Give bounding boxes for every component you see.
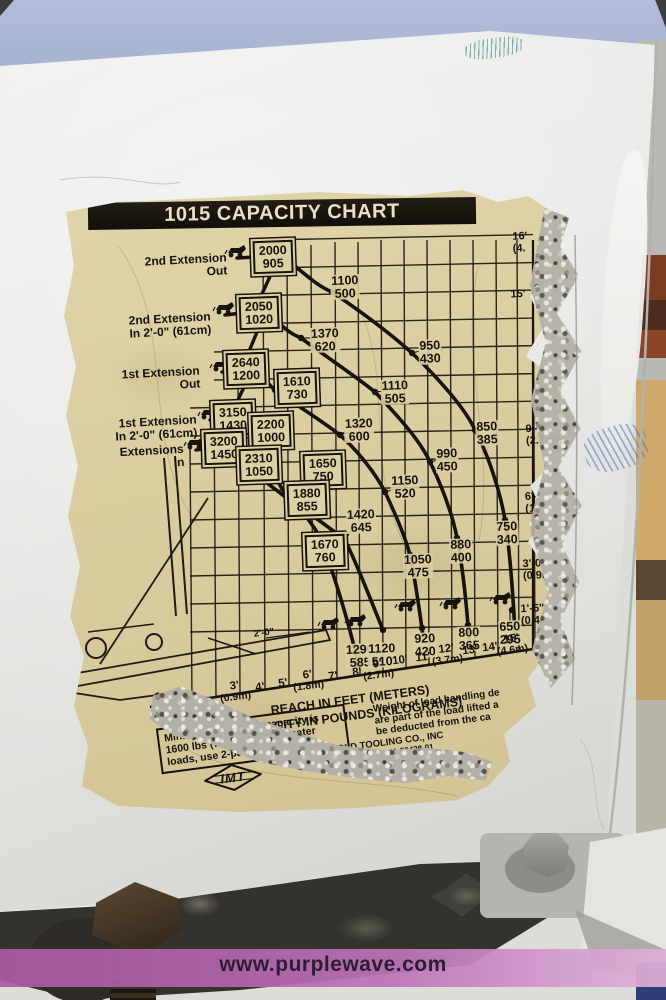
- photo-scene: 1015 CAPACITY CHART 2000 905 2050 1020 2…: [0, 0, 666, 1000]
- watermark-text: www.purplewave.com: [0, 953, 666, 977]
